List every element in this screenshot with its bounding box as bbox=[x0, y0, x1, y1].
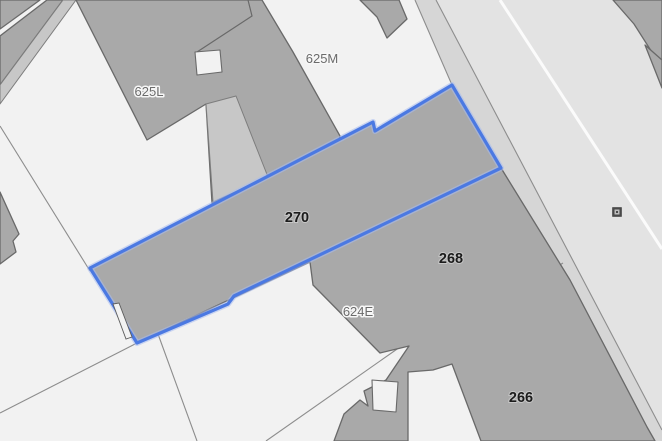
parcel-label-625m: 625M bbox=[306, 51, 339, 66]
map-canvas[interactable]: 625L 625M 624E 270 268 266 bbox=[0, 0, 662, 441]
parcel-label-625l: 625L bbox=[135, 84, 164, 99]
building-courtyard-notch bbox=[195, 50, 222, 75]
building-label-268: 268 bbox=[439, 251, 463, 267]
building-hole-square bbox=[372, 380, 398, 412]
utility-marker-icon[interactable] bbox=[613, 208, 622, 217]
map-viewport[interactable]: 625L 625M 624E 270 268 266 bbox=[0, 0, 662, 441]
building-label-270: 270 bbox=[285, 210, 309, 226]
building-label-266: 266 bbox=[509, 390, 533, 406]
parcel-label-624e: 624E bbox=[343, 304, 374, 319]
